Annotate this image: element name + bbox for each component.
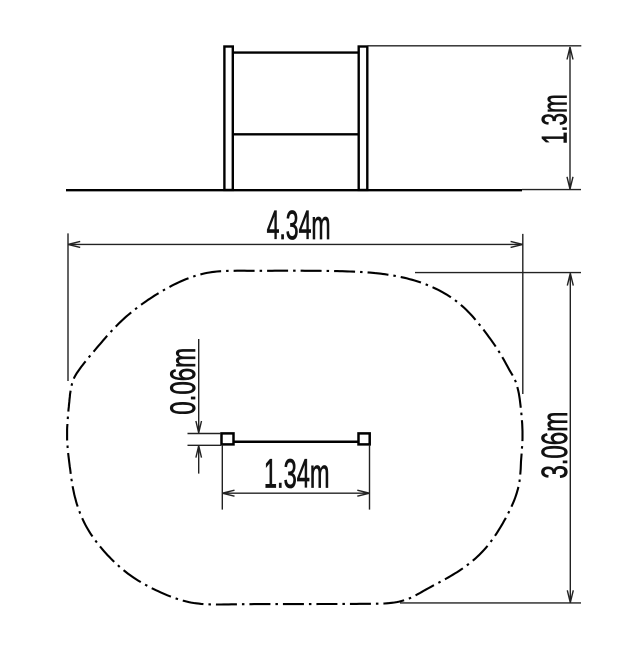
svg-text:1.34m: 1.34m [264,452,330,497]
svg-text:3.06m: 3.06m [534,412,575,479]
svg-text:4.34m: 4.34m [267,202,331,247]
svg-text:0.06m: 0.06m [165,348,204,415]
svg-text:1.3m: 1.3m [536,94,575,144]
